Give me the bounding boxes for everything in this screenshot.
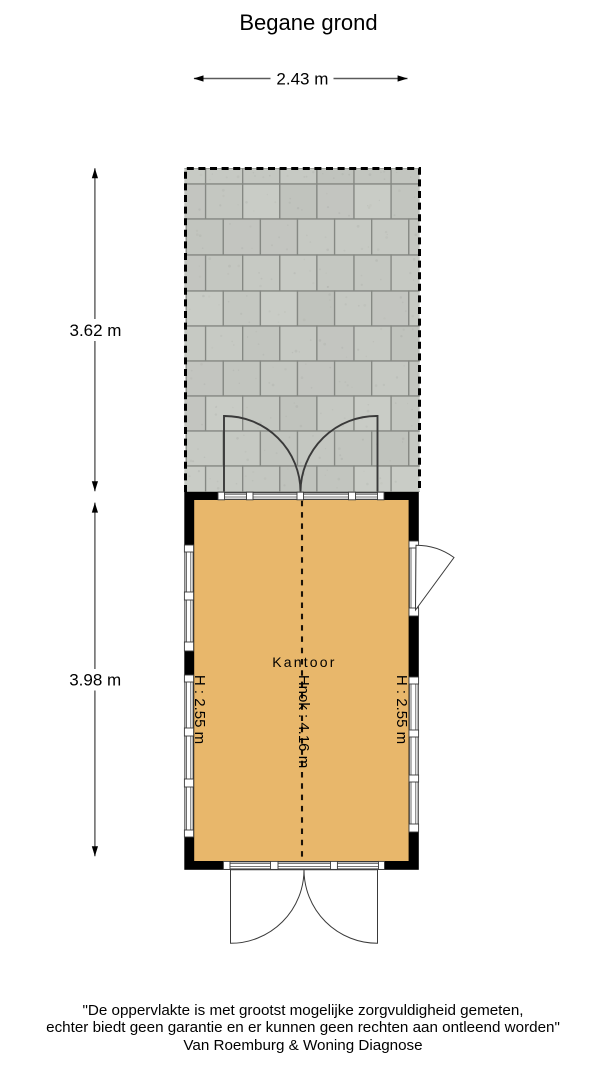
svg-text:3.98 m: 3.98 m: [69, 671, 121, 690]
svg-text:echter biedt geen garantie en: echter biedt geen garantie en er kunnen …: [46, 1019, 560, 1036]
svg-text:2.43 m: 2.43 m: [276, 69, 328, 88]
svg-text:Van Roemburg & Woning Diagnose: Van Roemburg & Woning Diagnose: [183, 1037, 422, 1054]
svg-text:3.62 m: 3.62 m: [70, 321, 122, 340]
svg-text:H : 2.55 m: H : 2.55 m: [393, 675, 410, 744]
svg-text:"De oppervlakte is met grootst: "De oppervlakte is met grootst mogelijke…: [83, 1002, 524, 1019]
svg-text:Kantoor: Kantoor: [272, 654, 336, 670]
svg-text:H : 2.55 m: H : 2.55 m: [191, 675, 208, 744]
svg-text:Hnok : 4.16 m: Hnok : 4.16 m: [295, 675, 312, 768]
svg-text:Begane grond: Begane grond: [239, 10, 377, 35]
